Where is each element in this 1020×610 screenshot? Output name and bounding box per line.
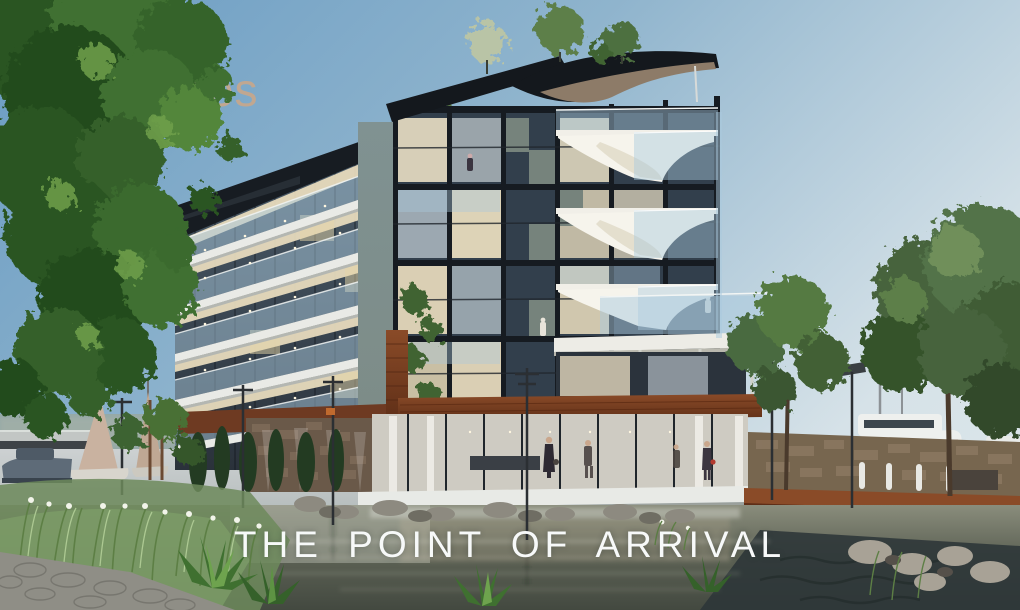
render-canvas: prehomes THE POINT OF ARRIVAL [0,0,1020,610]
rooftop-garden [467,6,640,62]
ground-floor-lobby [358,414,748,512]
tagline: THE POINT OF ARRIVAL [0,524,1020,566]
scene-art: prehomes [0,0,1020,610]
roof-canopy [386,6,719,122]
